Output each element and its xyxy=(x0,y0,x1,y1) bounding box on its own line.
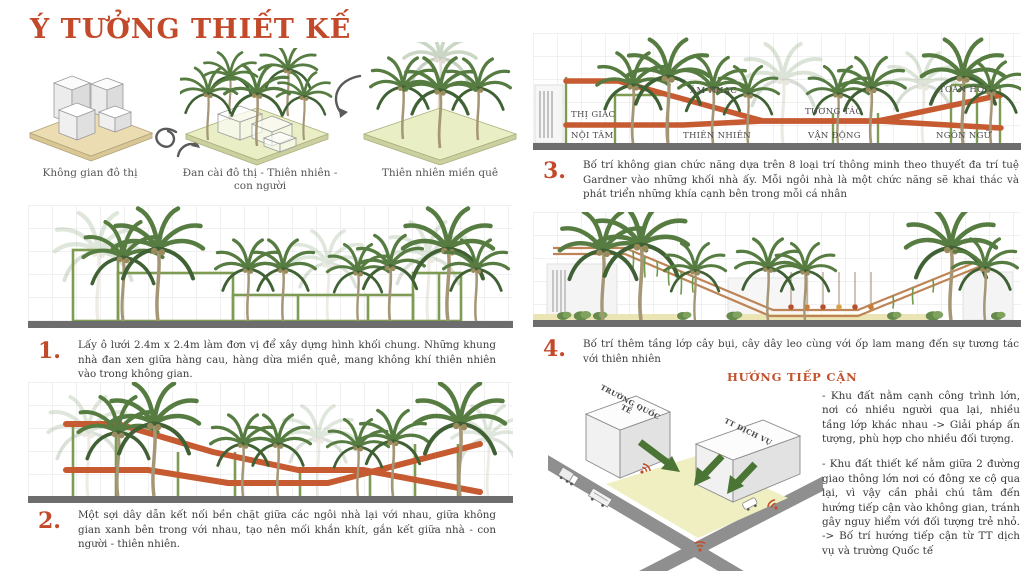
ground-bar xyxy=(533,320,1021,327)
ground-bar xyxy=(28,496,513,503)
site-access-diagram: TRƯỜNG QUỐC TẾ TT DỊCH VỤ xyxy=(548,386,823,571)
zone-label-intrapersonal: NỘI TÂM xyxy=(571,131,614,141)
elevation-diagram-ribbon xyxy=(28,382,513,510)
step-number-2: 2. xyxy=(38,508,61,534)
zone-label-visual: THỊ GIÁC xyxy=(571,110,615,120)
zone-label-language: NGÔN NGỮ xyxy=(936,131,991,141)
zone-label-music: ÂM NHẠC xyxy=(690,86,737,96)
step-text-1: Lấy ô lưới 2.4m x 2.4m làm đơn vị để xây… xyxy=(78,338,496,382)
access-notes: - Khu đất nằm cạnh công trình lớn, nơi c… xyxy=(822,389,1020,569)
step-text-3: Bố trí không gian chức năng dựa trên 8 l… xyxy=(583,158,1019,202)
zone-label-kinesthetic: VẬN ĐỘNG xyxy=(808,131,861,141)
access-note-2: - Khu đất thiết kế nằm giữa 2 đường giao… xyxy=(822,457,1020,558)
yellow-strip xyxy=(533,314,683,320)
function-zone-diagram: THỊ GIÁC NỘI TÂM ÂM NHẠC THIÊN NHIÊN TƯƠ… xyxy=(533,33,1021,157)
greenery-section-diagram xyxy=(533,212,1021,334)
concept-label-urban: Không gian đô thị xyxy=(20,167,160,180)
access-section-title: HƯỚNG TIẾP CẬN xyxy=(727,370,857,384)
ground-bar xyxy=(533,143,1021,150)
step-number-4: 4. xyxy=(543,336,566,362)
step-text-2: Một sợi dây dẫn kết nối bền chặt giữa cá… xyxy=(78,508,496,552)
step-number-3: 3. xyxy=(543,158,566,184)
page-title: Ý TƯỞNG THIẾT KẾ xyxy=(30,14,351,45)
concept-label-mixed: Đan cài đô thị - Thiên nhiên - con người xyxy=(180,167,340,193)
urban-block-diagram xyxy=(24,58,159,163)
access-note-1: - Khu đất nằm cạnh công trình lớn, nơi c… xyxy=(822,389,1020,446)
elevation-diagram-grid xyxy=(28,205,513,335)
design-board: Ý TƯỞNG THIẾT KẾ xyxy=(0,0,1024,576)
step-number-1: 1. xyxy=(38,338,61,364)
step-text-4: Bố trí thêm tầng lớp cây bụi, cây dây le… xyxy=(583,337,1019,366)
mixed-block-diagram xyxy=(180,48,335,166)
city-buildings-icon xyxy=(54,76,131,140)
zone-label-interpersonal: TƯƠNG TÁC xyxy=(805,107,862,117)
zone-label-math: TOÁN HỌC xyxy=(939,85,991,95)
zone-label-nature: THIÊN NHIÊN xyxy=(683,131,751,141)
nature-block-diagram xyxy=(358,42,523,165)
concept-label-nature: Thiên nhiên miền quê xyxy=(360,167,520,180)
ground-bar xyxy=(28,321,513,328)
